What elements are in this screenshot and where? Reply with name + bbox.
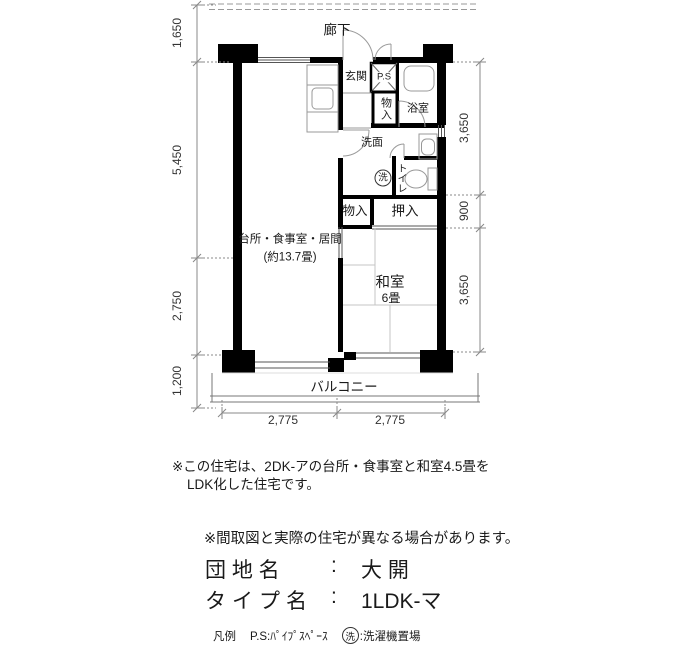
remodel-note-line1: ※この住宅は、2DK-アの台所・食事室と和室4.5畳を <box>172 455 489 475</box>
bathroom-label: 浴室 <box>407 104 429 115</box>
dim-left-4: 1,200 <box>170 366 184 396</box>
oshiire-label: 押入 <box>392 204 419 218</box>
dim-right-2: 900 <box>457 201 471 221</box>
ldk-name-label: 台所・食事室・居間 <box>238 234 342 246</box>
estate-name-colon: : <box>331 554 337 578</box>
corridor-label: 廊下 <box>324 23 351 37</box>
closet-label: 物入 <box>342 205 367 218</box>
washbasin <box>419 134 437 159</box>
dim-bottom-1: 2,775 <box>268 414 298 426</box>
washroom-label: 洗面 <box>361 138 383 149</box>
legend: 凡例 P.S:ﾊﾟｲﾌﾟｽﾍﾟｰｽ 洗 :洗濯機置場 <box>213 627 420 644</box>
corridor-lines <box>209 4 479 10</box>
ldk-size-label: (約13.7畳) <box>263 252 316 264</box>
type-name-label: タイプ名 <box>205 585 313 615</box>
estate-name-value: 大 開 <box>361 554 409 584</box>
disclaimer-note: ※間取図と実際の住宅が異なる場合があります。 <box>204 527 519 548</box>
type-name-value: 1LDK-マ <box>361 585 442 615</box>
genkan-step-lines <box>343 93 371 128</box>
floor-plan-drawing <box>0 0 700 650</box>
ps-label: P.S <box>376 72 392 82</box>
genkan-label: 玄関 <box>345 72 367 83</box>
legend-ps-item: P.S:ﾊﾟｲﾌﾟｽﾍﾟｰｽ <box>250 628 328 644</box>
floorplan-page: 廊下 玄関 P.S 物入 浴室 洗面 トイレ 洗 物入 押入 台所・食事室・居間… <box>0 0 700 650</box>
remodel-note-line2: LDK化した住宅です。 <box>187 473 320 493</box>
toilet-fixture <box>405 168 437 190</box>
toilet-label: トイレ <box>395 163 405 193</box>
type-name-colon: : <box>331 585 337 609</box>
dim-right-3: 3,650 <box>457 275 471 305</box>
estate-name-label: 団 地 名 <box>205 554 280 584</box>
balcony-label: バルコニー <box>310 380 377 394</box>
dim-left-1: 1,650 <box>170 18 184 48</box>
washitsu-size-label: 6畳 <box>382 292 401 304</box>
legend-laundry-desc: :洗濯機置場 <box>360 628 421 644</box>
laundry-space-mark: 洗 <box>375 170 392 187</box>
dim-right-1: 3,650 <box>457 113 471 143</box>
dim-bottom-2: 2,775 <box>375 414 405 426</box>
hall-closet-label: 物入 <box>380 97 391 121</box>
kitchen-counter <box>307 65 338 132</box>
legend-laundry-mark: 洗 <box>342 627 359 644</box>
dim-left-3: 2,750 <box>170 291 184 321</box>
dim-left-2: 5,450 <box>170 145 184 175</box>
washitsu-label: 和室 <box>376 276 405 291</box>
legend-heading: 凡例 <box>213 628 236 644</box>
bathtub <box>404 66 434 91</box>
